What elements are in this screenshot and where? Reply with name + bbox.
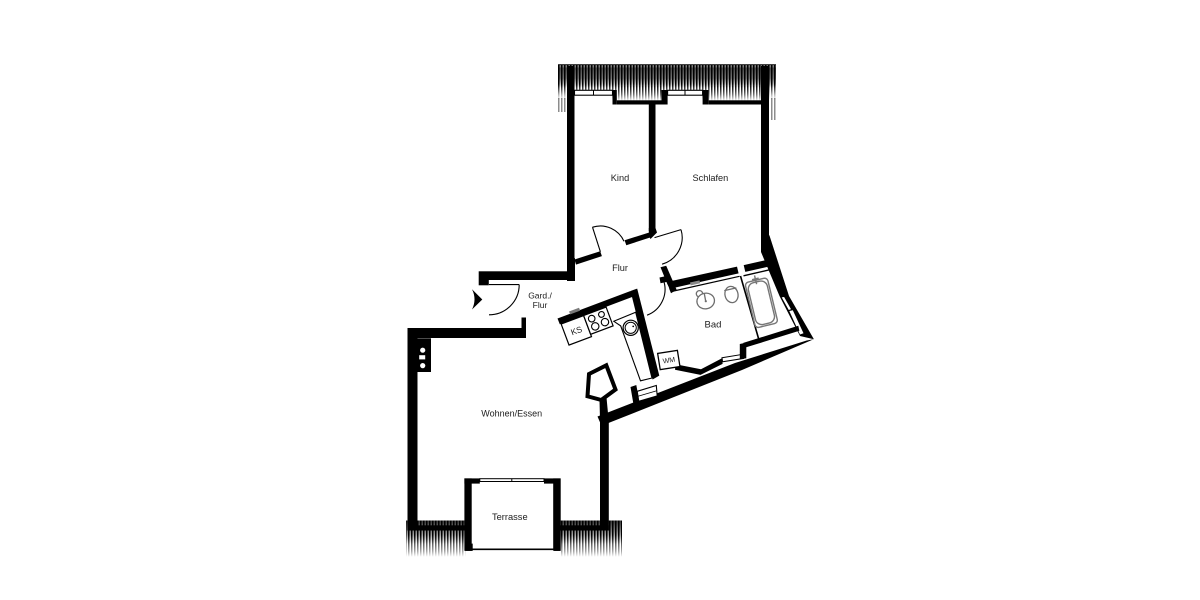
svg-text:Schlafen: Schlafen bbox=[693, 173, 729, 183]
svg-text:Bad: Bad bbox=[705, 319, 722, 330]
svg-text:Wohnen/Essen: Wohnen/Essen bbox=[481, 409, 542, 419]
svg-text:Flur: Flur bbox=[533, 300, 548, 310]
svg-text:Terrasse: Terrasse bbox=[492, 512, 528, 522]
svg-text:Flur: Flur bbox=[612, 263, 628, 273]
svg-text:Kind: Kind bbox=[611, 173, 629, 183]
